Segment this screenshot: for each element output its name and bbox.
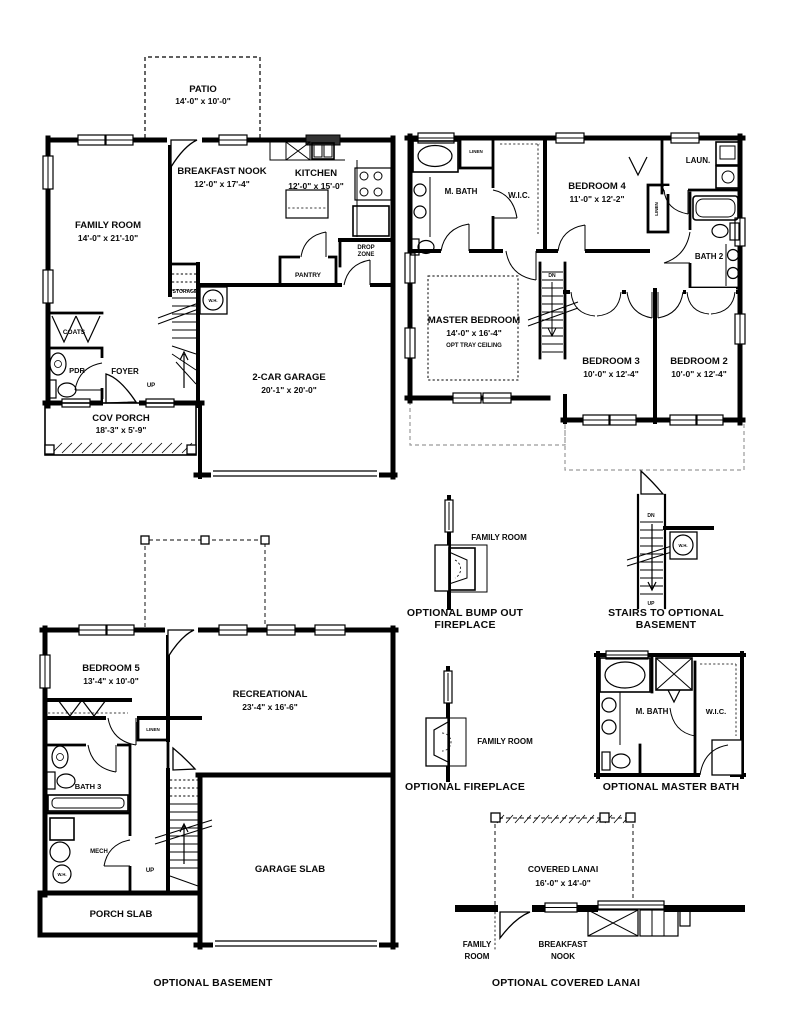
exterior-walls [407, 136, 743, 423]
dims-label-family-room: 14'-0" x 21'-10" [78, 233, 138, 243]
deck-outline [145, 540, 265, 627]
dims-label-lanai: 16'-0" x 14'-0" [535, 878, 591, 888]
room-label-kitchen: KITCHEN [295, 168, 337, 179]
room-label-foyer: FOYER [111, 367, 139, 376]
dims-label-garage: 20'-1" x 20'-0" [261, 385, 317, 395]
room-label-bath3: BATH 3 [75, 782, 102, 791]
bump-out-fireplace-detail: FAMILY ROOM OPTIONAL BUMP OUT FIREPLACE [407, 497, 527, 631]
laundry-fixtures [716, 142, 740, 188]
covered-lanai-detail: COVERED LANAI 16'-0" x 14'-0" FAMILY ROO… [455, 813, 745, 989]
room-label-wic: W.I.C. [706, 707, 726, 716]
room-label-drop-zone-1: DROP [357, 245, 374, 251]
stair-door [173, 748, 195, 770]
room-label-master: MASTER BEDROOM [428, 315, 520, 326]
dims-label-breakfast-nook: 12'-0" x 17'-4" [194, 179, 250, 189]
basement-stairs-detail: DN UP W.H. STAIRS TO OPTIONAL BASEMENT [608, 471, 724, 631]
bath2-fixtures [693, 196, 739, 286]
label-water-heater: W.H. [678, 543, 687, 548]
room-label-bedroom3: BEDROOM 3 [582, 356, 640, 367]
caption: OPTIONAL FIREPLACE [405, 781, 525, 793]
mbath-door [441, 224, 469, 251]
bump-out [435, 545, 449, 591]
basement-plan: BEDROOM 5 13'-4" x 10'-0" RECREATIONAL 2… [40, 536, 396, 989]
master-door [506, 251, 536, 280]
room-label-nook-1: BREAKFAST [539, 940, 588, 949]
label-dn: DN [647, 513, 655, 519]
bedroom5-closet-bifold [58, 700, 106, 716]
dims-label-bedroom3: 10'-0" x 12'-4" [583, 369, 639, 379]
second-floor-plan: M. BATH W.I.C. BEDROOM 4 11'-0" x 12'-2"… [405, 133, 745, 470]
room-label-laundry: LAUN. [686, 156, 710, 165]
room-label-family-1: FAMILY [463, 940, 492, 949]
front-door [106, 374, 136, 403]
room-label-patio: PATIO [189, 84, 217, 95]
room-label-porch-slab: PORCH SLAB [90, 909, 153, 920]
room-label-lanai: COVERED LANAI [528, 864, 598, 874]
room-label-wic: W.I.C. [508, 191, 530, 200]
bath3-door [88, 745, 116, 772]
room-label-m-bath: M. BATH [445, 187, 478, 196]
label-up: UP [147, 383, 155, 389]
dims-label-bedroom2: 10'-0" x 12'-4" [671, 369, 727, 379]
dims-label-patio: 14'-0" x 10'-0" [175, 96, 231, 106]
caption-line2: FIREPLACE [434, 619, 495, 631]
stairs-down [528, 272, 578, 352]
wic-door [670, 708, 695, 736]
room-label-nook-2: NOOK [551, 952, 575, 961]
first-floor-plan: PATIO 14'-0" x 10'-0" BREAKFAST NOOK 12'… [43, 57, 395, 480]
powder-room-fixtures [48, 353, 76, 398]
room-label-bedroom5: BEDROOM 5 [82, 663, 140, 674]
room-label-cov-porch: COV PORCH [92, 413, 150, 424]
label-up: UP [146, 868, 154, 874]
label-linen-top: LINEN [469, 149, 483, 154]
room-label-bath2: BATH 2 [695, 252, 724, 261]
island [286, 190, 328, 218]
label-water-heater: W.H. [208, 298, 217, 303]
label-linen: LINEN [146, 727, 160, 732]
floor-plan-sheet: PATIO 14'-0" x 10'-0" BREAKFAST NOOK 12'… [0, 0, 791, 1024]
bump-out [426, 718, 448, 766]
room-label-pdr: PDR [69, 366, 85, 375]
room-label-family-room: FAMILY ROOM [477, 737, 533, 746]
note-label-master: OPT TRAY CEILING [446, 343, 502, 349]
room-label-garage: 2-CAR GARAGE [252, 372, 325, 383]
stair-door [641, 471, 663, 494]
dims-label-kitchen: 12'-0" x 15'-0" [288, 181, 344, 191]
lanai-door [500, 912, 530, 938]
bedroom5-door [108, 718, 136, 745]
footprint-outline [410, 401, 744, 470]
fixtures [600, 658, 742, 775]
dims-label-cov-porch: 18'-3" x 5'-9" [96, 425, 147, 435]
label-mech: MECH [90, 849, 108, 855]
label-storage: STORAGE [173, 289, 198, 295]
caption-line2: BASEMENT [636, 619, 697, 631]
dims-label-recreational: 23'-4" x 16'-6" [242, 702, 298, 712]
room-label-garage-slab: GARAGE SLAB [255, 864, 325, 875]
bedroom4-closet-bifold [629, 157, 647, 175]
windows [405, 133, 745, 425]
room-label-bedroom4: BEDROOM 4 [568, 181, 626, 192]
label-linen-side: LINEN [654, 202, 659, 216]
lanai-outline [495, 818, 633, 905]
room-label-recreational: RECREATIONAL [233, 689, 308, 700]
label-water-heater: W.H. [57, 872, 66, 877]
dims-label-bedroom5: 13'-4" x 10'-0" [83, 676, 139, 686]
room-label-pantry: PANTRY [295, 272, 322, 279]
caption-line1: STAIRS TO OPTIONAL [608, 607, 724, 619]
room-label-coats: COATS [63, 329, 86, 336]
master-bath-detail: M. BATH W.I.C. OPTIONAL MASTER BATH [596, 651, 744, 793]
room-label-bedroom2: BEDROOM 2 [670, 356, 728, 367]
caption-line1: OPTIONAL BUMP OUT [407, 607, 524, 619]
label-dn: DN [548, 273, 556, 279]
caption: OPTIONAL MASTER BATH [603, 781, 740, 793]
up-arrow [180, 352, 188, 388]
caption-optional-basement: OPTIONAL BASEMENT [153, 977, 273, 989]
fireplace-detail: FAMILY ROOM OPTIONAL FIREPLACE [405, 668, 533, 793]
range [355, 168, 391, 200]
stairs-up [155, 780, 212, 886]
firebox [449, 548, 475, 590]
room-label-drop-zone-2: ZONE [358, 252, 375, 258]
wic-shelving [500, 144, 540, 234]
caption: OPTIONAL COVERED LANAI [492, 977, 640, 989]
refrigerator [353, 206, 389, 236]
room-label-family-room: FAMILY ROOM [75, 220, 141, 231]
room-label-breakfast-nook: BREAKFAST NOOK [177, 166, 266, 177]
mbath-fixtures [411, 141, 458, 255]
room-label-family-room: FAMILY ROOM [471, 533, 527, 542]
room-label-m-bath: M. BATH [636, 707, 669, 716]
room-label-family-2: ROOM [465, 952, 490, 961]
dims-label-master: 14'-0" x 16'-4" [446, 328, 502, 338]
dims-label-bedroom4: 11'-0" x 12'-2" [569, 194, 624, 204]
